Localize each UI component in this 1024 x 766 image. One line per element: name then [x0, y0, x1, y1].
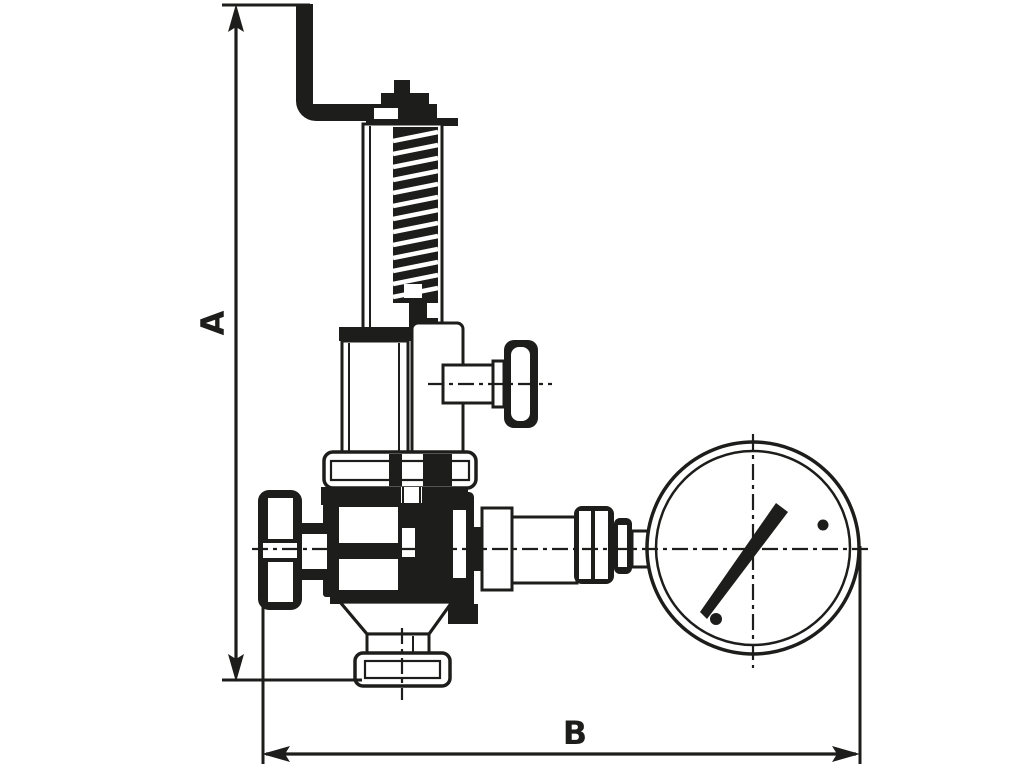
- dimension-b-label: B: [563, 714, 587, 752]
- gauge-stop-pin-low: [710, 613, 722, 625]
- pressure-gauge: [647, 434, 859, 668]
- spring-cap: [366, 80, 458, 126]
- spring-housing: [339, 124, 443, 341]
- bottom-outlet: [330, 590, 456, 700]
- body-outlet-flange: [448, 492, 484, 624]
- bonnet-column: [342, 341, 408, 453]
- gauge-stop-pin-high: [818, 520, 829, 531]
- drawing-svg: A B: [0, 0, 1024, 766]
- dimension-a-label: A: [194, 310, 232, 335]
- bonnet-nut: [324, 452, 476, 488]
- valve-dimension-drawing: A B: [0, 0, 1024, 766]
